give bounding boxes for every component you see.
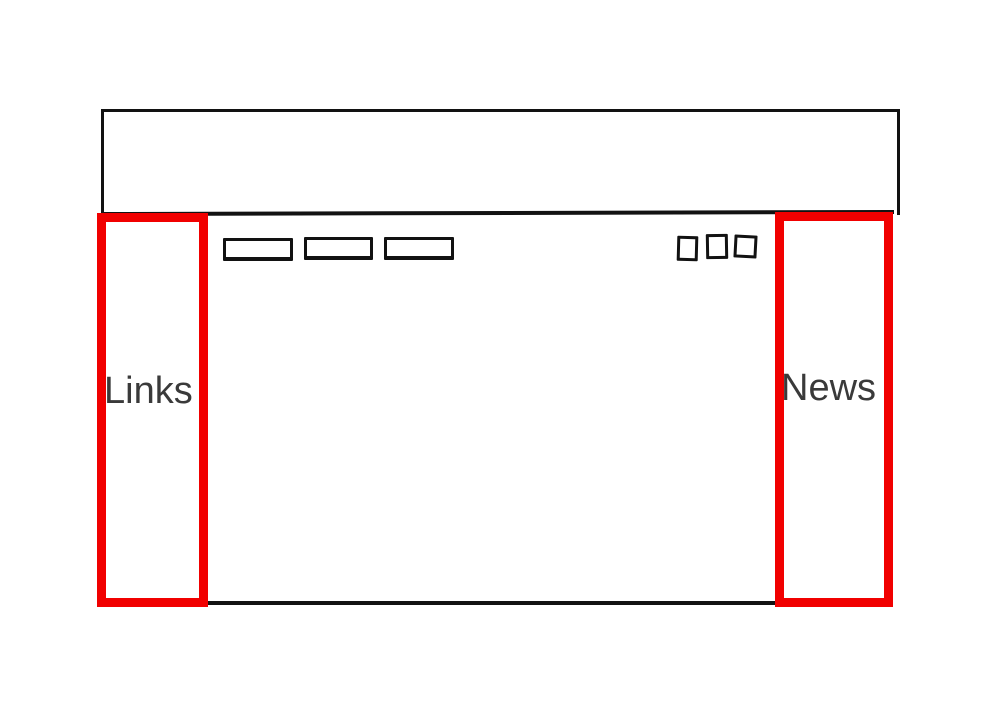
header-placeholder-box (101, 109, 900, 215)
links-sidebar-label: Links (104, 372, 193, 410)
content-bottom-edge-line (104, 601, 890, 605)
nav-button-placeholder-3 (384, 237, 454, 260)
news-sidebar-annotation-box (775, 212, 893, 607)
square-icon-placeholder-3 (733, 234, 757, 258)
nav-button-placeholder-2 (304, 237, 373, 260)
nav-button-placeholder-1 (223, 238, 293, 261)
square-icon-placeholder-2 (706, 234, 728, 259)
news-sidebar-label: News (781, 369, 876, 407)
wireframe-sketch-canvas: Links News (0, 0, 1000, 713)
square-icon-placeholder-1 (677, 236, 699, 262)
